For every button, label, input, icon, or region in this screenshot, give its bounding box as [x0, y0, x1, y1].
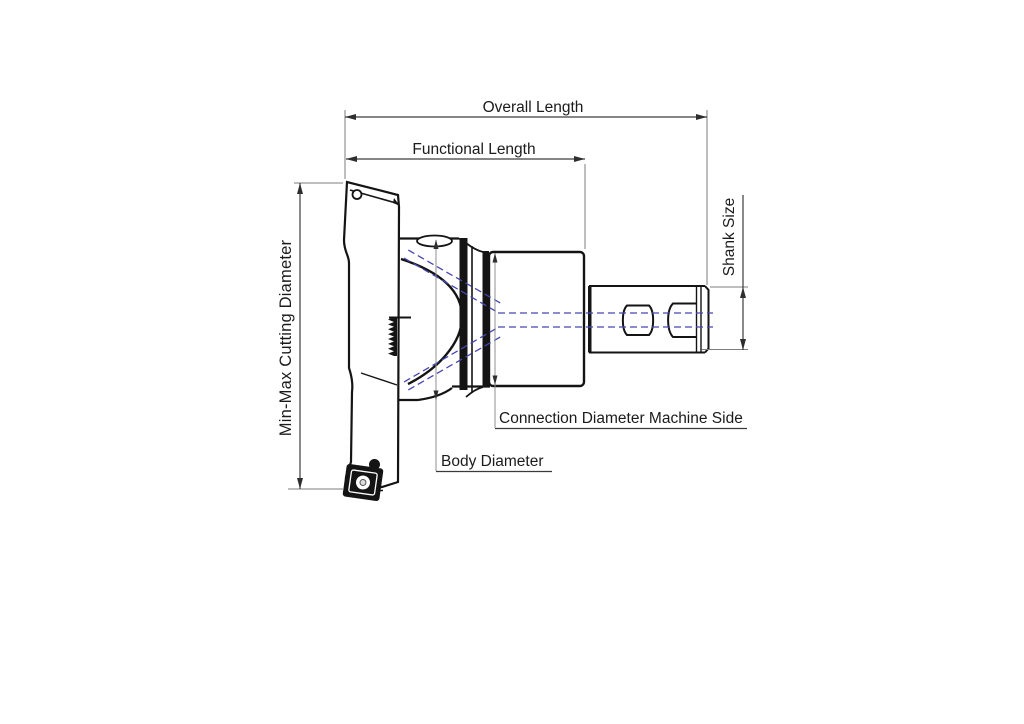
arrowhead-top [740, 287, 746, 298]
shank-left-edge [588, 286, 592, 353]
dimension-overall-length: Overall Length [345, 99, 707, 120]
label-connection-diameter: Connection Diameter Machine Side [499, 410, 743, 427]
label-functional-length: Functional Length [412, 141, 535, 158]
arrowhead-bottom [297, 478, 303, 489]
shank-face [589, 286, 709, 353]
tool-body [399, 236, 490, 402]
technical-drawing-canvas: Overall Length Functional Length Min-Max… [0, 0, 1024, 724]
label-shank-size: Shank Size [721, 198, 738, 276]
tool-shank [588, 286, 709, 353]
dimension-shank-size: Shank Size [721, 195, 746, 350]
arrowhead-right [696, 114, 707, 120]
label-overall-length: Overall Length [483, 99, 584, 116]
bottom-insert-screw-center [360, 479, 367, 486]
dimension-functional-length: Functional Length [346, 141, 585, 162]
label-body-diameter: Body Diameter [441, 453, 544, 470]
set-screw-hole-ellipse [417, 236, 452, 247]
arrowhead-bottom [740, 339, 746, 350]
arrowhead-right [574, 156, 585, 162]
bottom-insert-body [342, 464, 383, 502]
connection-cylinder [483, 251, 585, 387]
top-insert-screw-hole [353, 190, 362, 199]
tool-dimension-diagram: Overall Length Functional Length Min-Max… [0, 0, 1024, 724]
arrowhead-top [297, 183, 303, 194]
dimension-min-max-cutting-diameter: Min-Max Cutting Diameter [277, 183, 303, 489]
body-right-band [460, 238, 468, 390]
arrowhead-left [346, 156, 357, 162]
arrowhead-left [345, 114, 356, 120]
connection-outline [489, 252, 584, 386]
label-min-max-cutting-diameter: Min-Max Cutting Diameter [277, 239, 295, 436]
